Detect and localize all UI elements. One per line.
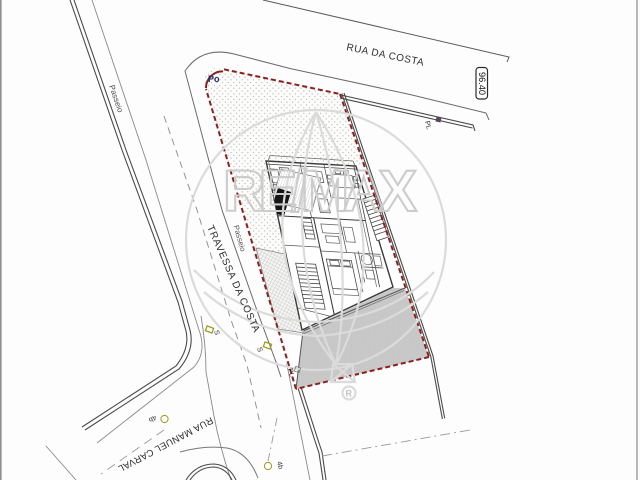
svg-text:R: R	[346, 389, 353, 399]
svg-text:96.40: 96.40	[477, 72, 487, 95]
svg-text:RE/MAX: RE/MAX	[223, 159, 417, 224]
svg-text:Po: Po	[208, 74, 220, 84]
